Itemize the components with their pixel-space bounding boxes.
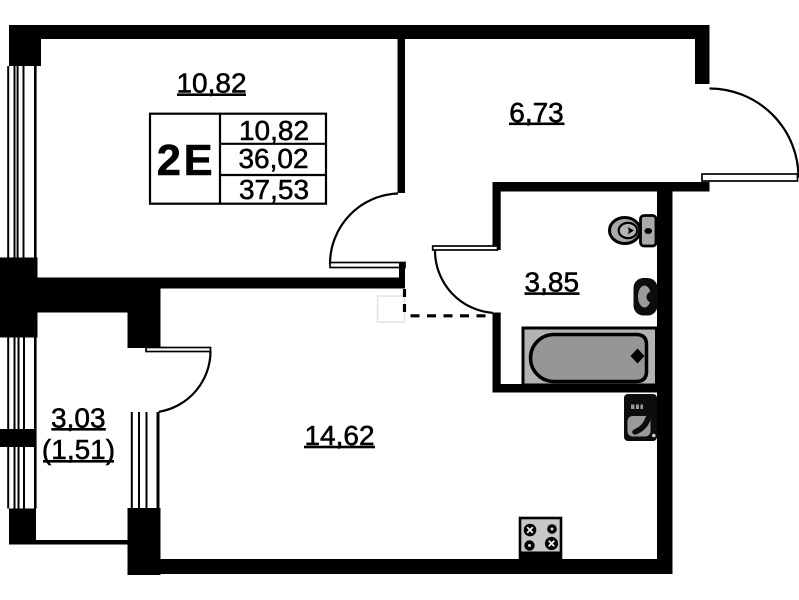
svg-text:36,02: 36,02 bbox=[238, 143, 308, 174]
svg-text:10,82: 10,82 bbox=[239, 115, 309, 146]
svg-text:2E: 2E bbox=[157, 137, 215, 185]
svg-text:37,53: 37,53 bbox=[239, 174, 309, 205]
